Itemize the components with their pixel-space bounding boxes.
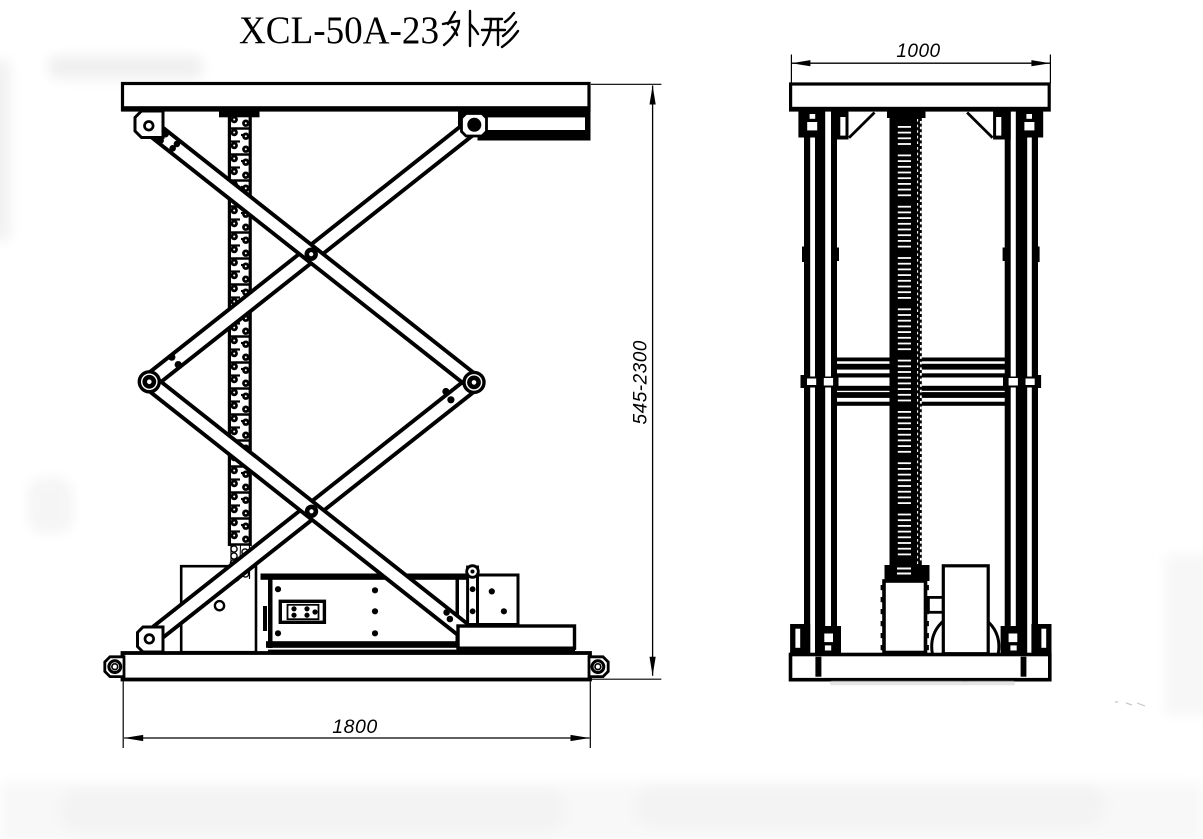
svg-text:1800: 1800: [332, 716, 377, 738]
svg-text:545-2300: 545-2300: [631, 340, 652, 424]
svg-text:XCL-50A-23: XCL-50A-23: [239, 9, 439, 52]
svg-text:1000: 1000: [896, 41, 940, 62]
